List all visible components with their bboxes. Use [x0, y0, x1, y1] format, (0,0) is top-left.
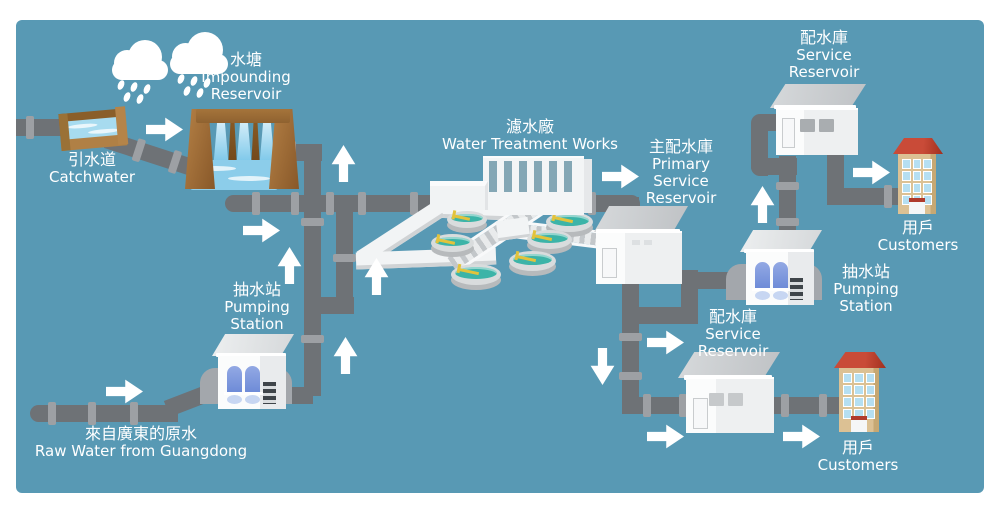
- pipe-segment: [622, 278, 639, 414]
- building-vent: [644, 240, 652, 245]
- label-en: Raw Water from Guangdong: [35, 443, 247, 460]
- label-pumping-station-left: 抽水站 Pumping Station: [224, 280, 290, 333]
- clarifier-tank: [447, 211, 487, 233]
- pipe-flange: [884, 185, 892, 208]
- building-side-face: [584, 159, 592, 213]
- pipe-flange: [819, 394, 827, 417]
- pipe-flange: [781, 394, 789, 417]
- treatment-works-building: [483, 156, 584, 215]
- pipe-flange: [301, 335, 324, 343]
- window: [923, 171, 932, 181]
- water-wave: [67, 123, 97, 130]
- window: [854, 373, 863, 383]
- clarifier-tank: [431, 234, 474, 257]
- label-zh: 配水庫: [789, 28, 860, 47]
- pipe-flange: [776, 218, 799, 226]
- pump-base: [773, 291, 788, 300]
- pump-base: [245, 395, 260, 404]
- pipe-flange: [26, 116, 34, 139]
- pump-base: [755, 291, 770, 300]
- rain-drop: [122, 91, 132, 103]
- label-en: Station: [833, 298, 899, 315]
- window: [843, 385, 852, 395]
- label-en: Reservoir: [646, 190, 717, 207]
- pipe-segment: [304, 297, 354, 314]
- label-primary-service-reservoir: 主配水庫 Primary Service Reservoir: [646, 137, 717, 207]
- building-window: [728, 393, 743, 406]
- catchwater-channel: [58, 106, 132, 156]
- window: [913, 171, 922, 181]
- label-en: Station: [224, 316, 290, 333]
- rain-drop: [129, 81, 139, 93]
- label-impounding-reservoir: 水塘 Impounding Reservoir: [201, 50, 290, 103]
- label-en: Customers: [818, 457, 899, 474]
- rain-drops-icon: [116, 80, 164, 104]
- water-wave: [228, 176, 270, 181]
- label-customers-bottom: 用戶 Customers: [818, 438, 899, 474]
- label-en: Pumping: [224, 299, 290, 316]
- vent-grille-icon: [790, 278, 803, 300]
- window: [902, 171, 911, 181]
- pipe-flange: [291, 192, 299, 215]
- water-wave: [88, 128, 120, 135]
- pipe-flange: [643, 394, 651, 417]
- building-door: [782, 118, 795, 148]
- window: [854, 385, 863, 395]
- building-window: [709, 393, 724, 406]
- clarifier-tank: [451, 264, 501, 290]
- building-vent: [632, 240, 640, 245]
- window: [854, 397, 863, 407]
- building-window: [819, 119, 834, 132]
- label-zh: 抽水站: [833, 262, 899, 281]
- window: [866, 409, 875, 419]
- rain-drop: [135, 93, 145, 105]
- label-en: Catchwater: [49, 169, 135, 186]
- rain-drop: [116, 79, 126, 91]
- label-service-reservoir-top: 配水庫 Service Reservoir: [789, 28, 860, 81]
- pump-base: [227, 395, 242, 404]
- pump-unit: [773, 262, 788, 291]
- label-en: Primary: [646, 156, 717, 173]
- window: [902, 159, 911, 169]
- label-en: Reservoir: [698, 343, 769, 360]
- window: [866, 385, 875, 395]
- building-door: [693, 398, 708, 429]
- label-zh: 抽水站: [224, 280, 290, 299]
- window: [913, 159, 922, 169]
- label-en: Service: [698, 326, 769, 343]
- label-zh: 濾水廠: [442, 117, 618, 136]
- pipe-flange: [326, 192, 334, 215]
- pipe-segment: [30, 405, 178, 422]
- rain-cloud-icon: [112, 36, 168, 80]
- label-en: Impounding: [201, 69, 290, 86]
- pipe-flange: [252, 192, 260, 215]
- window: [923, 159, 932, 169]
- pipe-flange: [168, 150, 183, 174]
- label-en: Service: [789, 47, 860, 64]
- rain-drop: [176, 73, 186, 85]
- building-columns: [489, 161, 575, 192]
- label-customers-top: 用戶 Customers: [878, 218, 959, 254]
- pipe-flange: [301, 218, 324, 226]
- label-raw-water-guangdong: 來自廣東的原水 Raw Water from Guangdong: [35, 424, 247, 460]
- building-door: [851, 416, 867, 432]
- label-zh: 引水道: [49, 150, 135, 169]
- label-en: Reservoir: [789, 64, 860, 81]
- pipe-segment: [681, 272, 731, 289]
- channel-right-wall: [115, 106, 128, 145]
- pipe-flange: [130, 402, 138, 425]
- pipe-segment: [304, 144, 321, 396]
- building-windows: [843, 373, 875, 419]
- rain-drop: [142, 83, 152, 95]
- rain-drop: [182, 85, 192, 97]
- window: [866, 397, 875, 407]
- dam-crest: [196, 109, 290, 123]
- pipe-flange: [88, 402, 96, 425]
- cloud-base: [112, 60, 168, 80]
- pipe-flange: [358, 192, 366, 215]
- water-supply-diagram: 水塘 Impounding Reservoir 引水道 Catchwater 濾…: [0, 0, 1000, 512]
- pump-unit: [245, 366, 260, 395]
- window: [866, 373, 875, 383]
- pump-unit: [227, 366, 242, 395]
- building-window: [800, 119, 815, 132]
- window: [843, 373, 852, 383]
- label-en: Service: [646, 173, 717, 190]
- label-en: Reservoir: [201, 86, 290, 103]
- pipe-flange: [333, 254, 356, 262]
- window: [913, 183, 922, 193]
- pipe-flange: [619, 333, 642, 341]
- clarifier-tank: [509, 251, 556, 276]
- label-zh: 配水庫: [698, 307, 769, 326]
- pipe-flange: [776, 182, 799, 190]
- pipe-flange: [619, 372, 642, 380]
- window: [902, 183, 911, 193]
- label-zh: 來自廣東的原水: [35, 424, 247, 443]
- pipe-segment: [751, 158, 797, 175]
- building-door: [602, 248, 617, 278]
- treatment-works-annex: [430, 181, 488, 210]
- label-catchwater: 引水道 Catchwater: [49, 150, 135, 186]
- label-water-treatment-works: 濾水廠 Water Treatment Works: [442, 117, 618, 153]
- rain-drop: [189, 75, 199, 87]
- pipe-flange: [48, 402, 56, 425]
- vent-grille-icon: [263, 382, 276, 404]
- window: [923, 183, 932, 193]
- window: [843, 397, 852, 407]
- label-zh: 水塘: [201, 50, 290, 69]
- pipe-segment: [827, 188, 899, 205]
- label-service-reservoir-bottom: 配水庫 Service Reservoir: [698, 307, 769, 360]
- building-door: [909, 198, 925, 214]
- label-en: Customers: [878, 237, 959, 254]
- label-zh: 主配水庫: [646, 137, 717, 156]
- label-en: Pumping: [833, 281, 899, 298]
- pump-unit: [755, 262, 770, 291]
- label-zh: 用戶: [878, 218, 959, 237]
- label-en: Water Treatment Works: [442, 136, 618, 153]
- label-pumping-station-right: 抽水站 Pumping Station: [833, 262, 899, 315]
- label-zh: 用戶: [818, 438, 899, 457]
